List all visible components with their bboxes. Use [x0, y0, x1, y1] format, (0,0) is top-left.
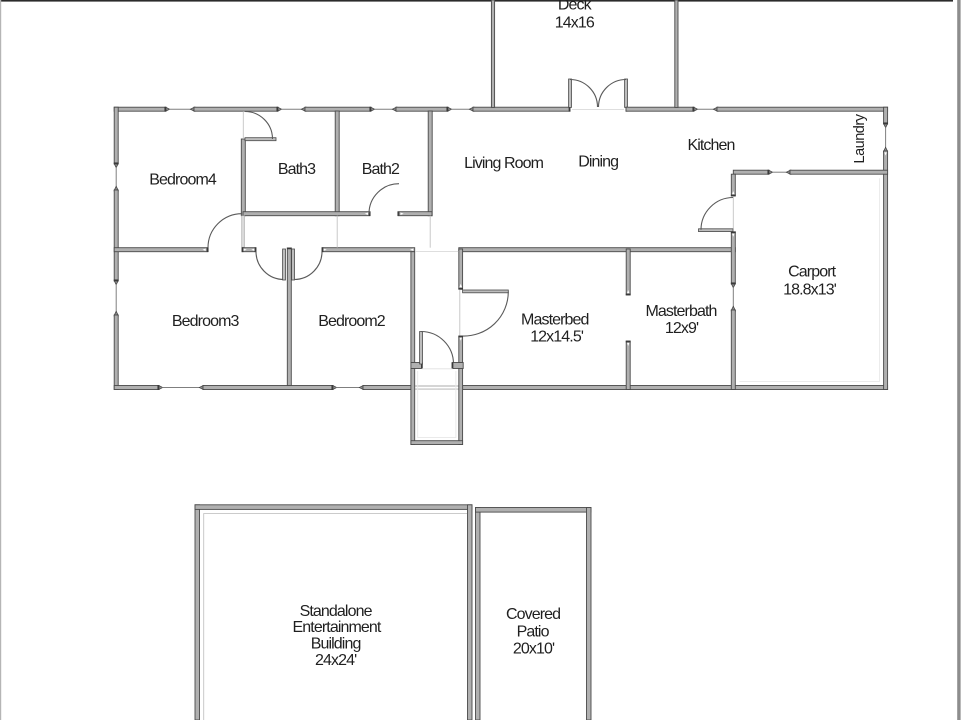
svg-text:Standalone: Standalone: [300, 603, 373, 620]
svg-text:Masterbed: Masterbed: [521, 312, 589, 329]
svg-text:Bath3: Bath3: [278, 161, 316, 178]
svg-text:20x10': 20x10': [513, 640, 555, 657]
svg-text:Bedroom2: Bedroom2: [318, 313, 386, 330]
svg-text:Building: Building: [311, 636, 361, 653]
svg-text:24x24': 24x24': [315, 652, 357, 669]
svg-text:12x9': 12x9': [665, 320, 699, 337]
svg-text:Bedroom4: Bedroom4: [149, 172, 217, 189]
svg-text:Living Room: Living Room: [464, 155, 544, 172]
svg-text:Bath2: Bath2: [362, 161, 400, 178]
svg-text:Entertainment: Entertainment: [293, 619, 382, 636]
svg-text:12x14.5': 12x14.5': [530, 329, 584, 346]
svg-text:Deck: Deck: [558, 0, 593, 13]
svg-text:Dining: Dining: [578, 154, 618, 171]
svg-text:Laundry: Laundry: [852, 113, 868, 163]
svg-text:Masterbath: Masterbath: [645, 303, 716, 320]
svg-text:18.8x13': 18.8x13': [783, 282, 837, 299]
svg-text:Patio: Patio: [517, 623, 550, 640]
svg-text:Kitchen: Kitchen: [687, 137, 734, 154]
svg-text:Bedroom3: Bedroom3: [172, 313, 240, 330]
svg-text:Covered: Covered: [506, 606, 560, 623]
svg-text:Carport: Carport: [788, 264, 837, 281]
svg-text:14x16: 14x16: [555, 15, 595, 32]
